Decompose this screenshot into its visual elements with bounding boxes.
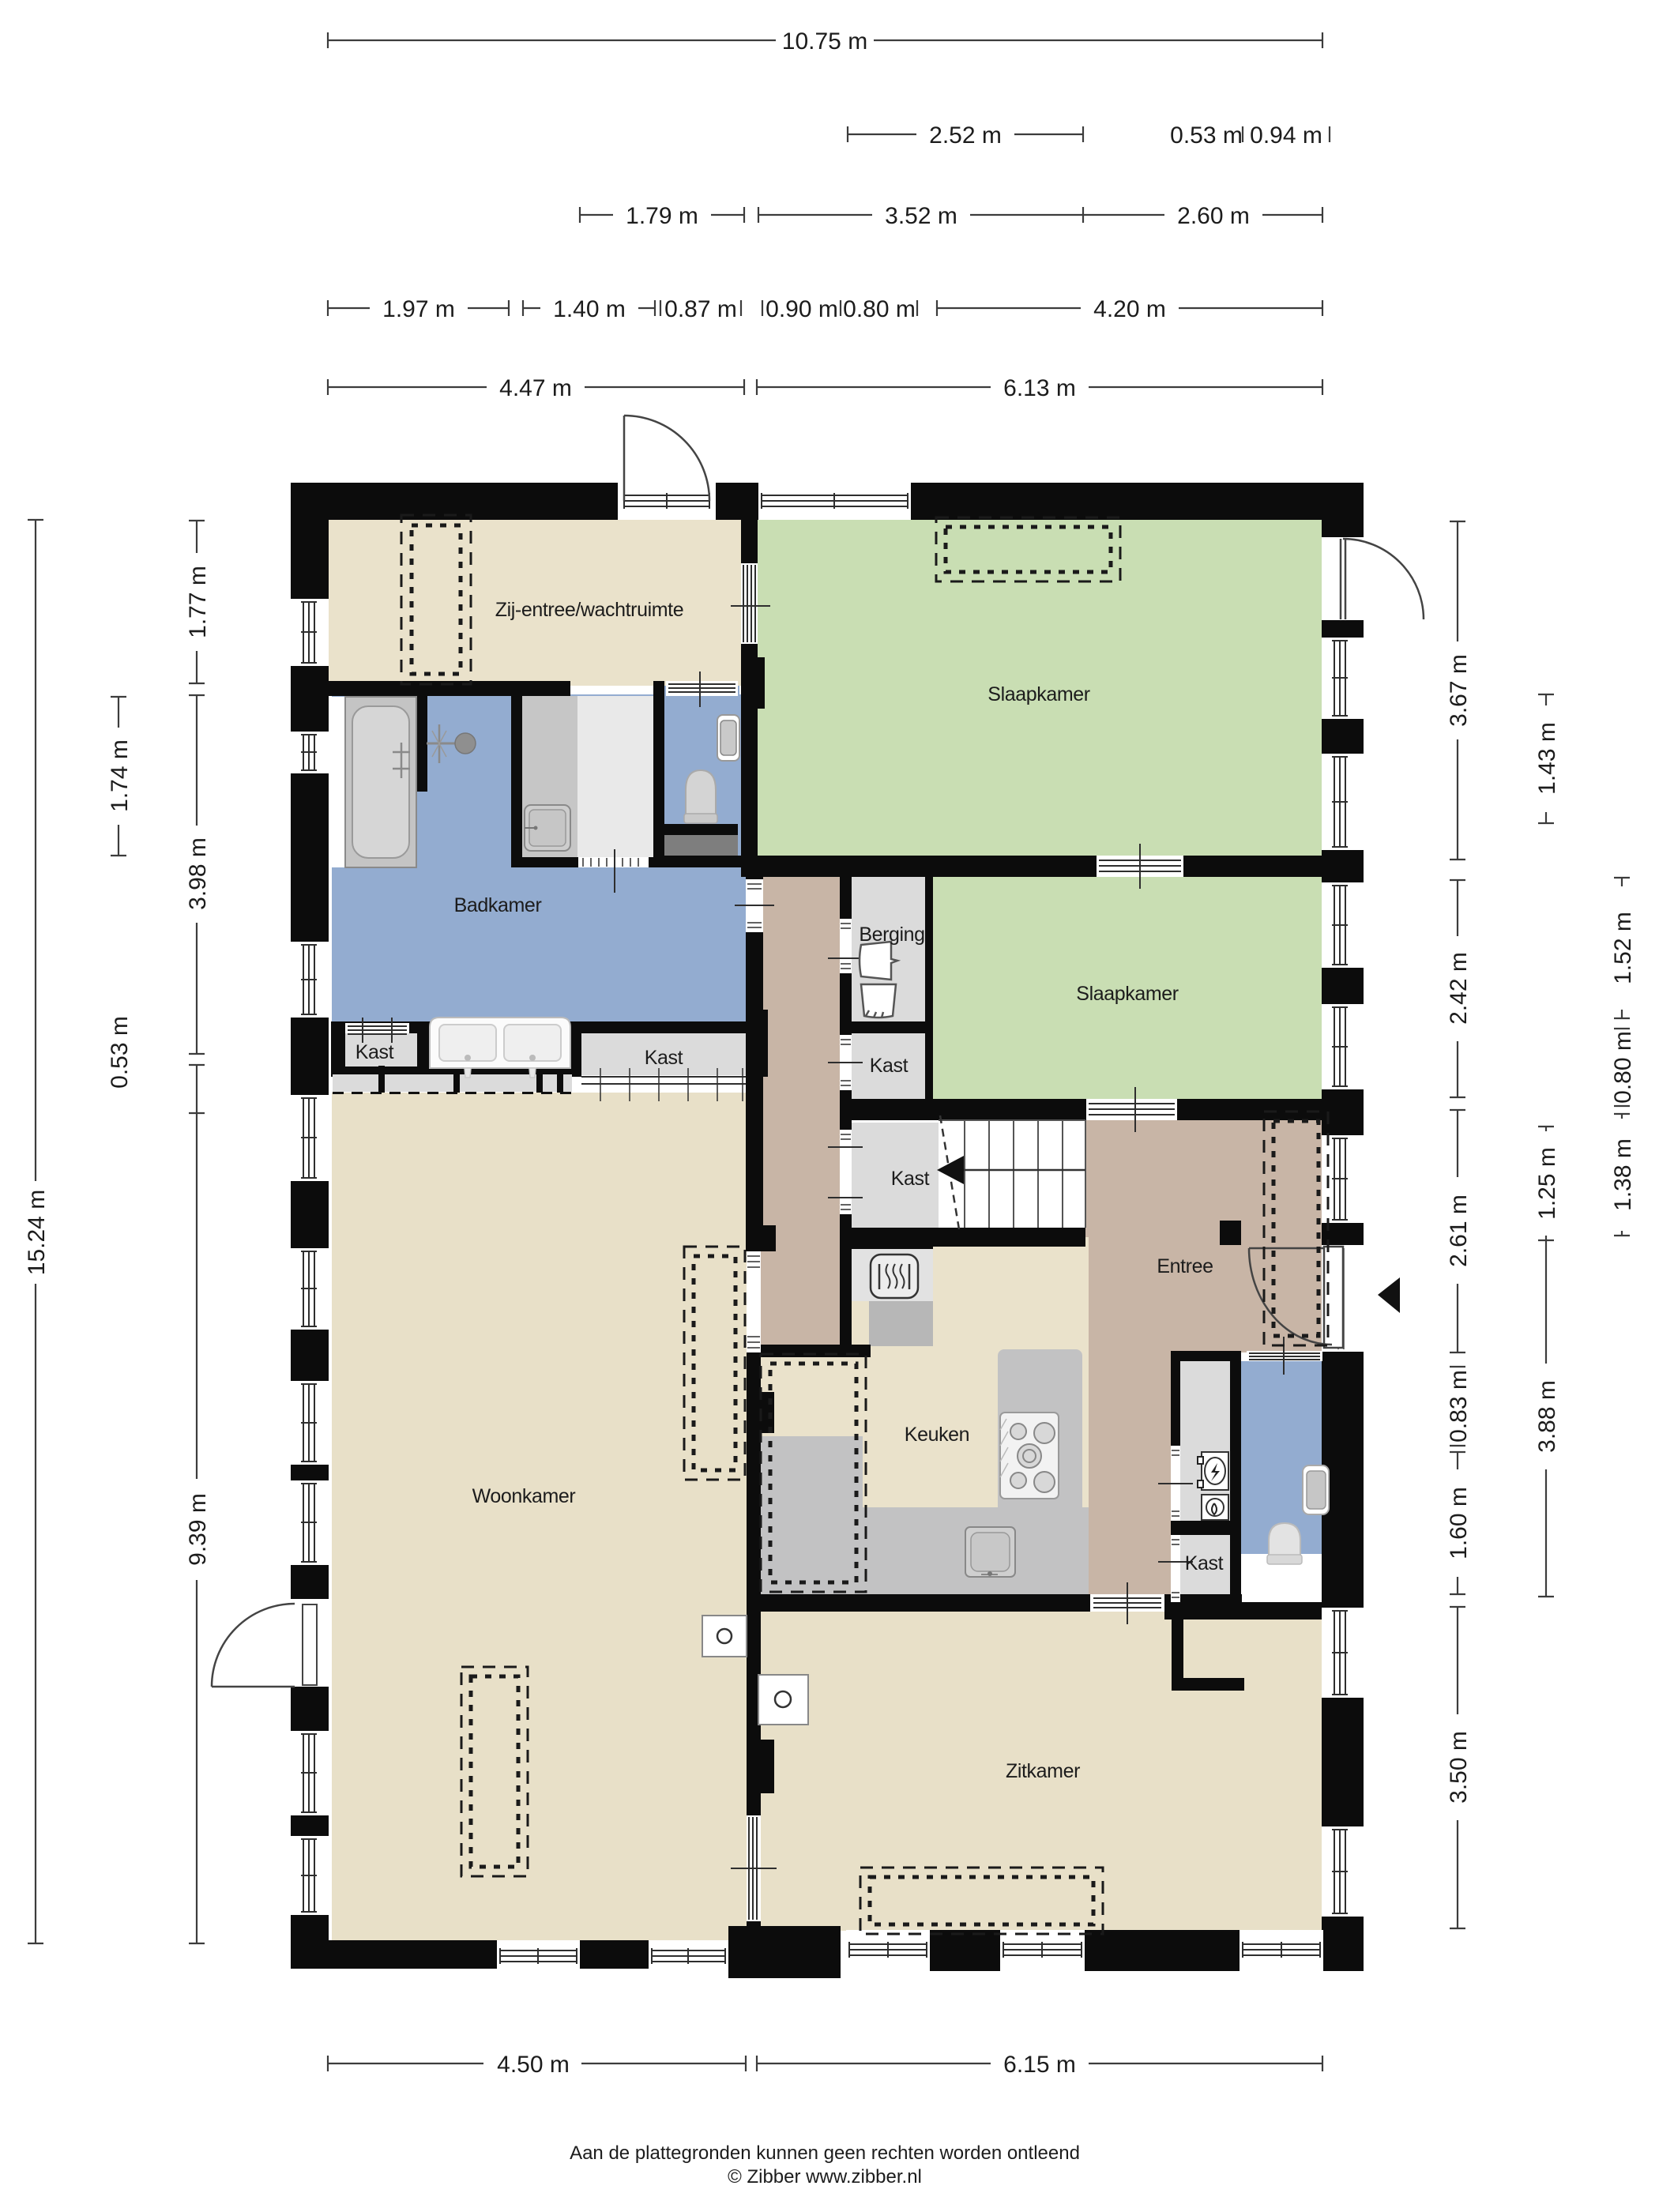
- svg-text:Kast: Kast: [645, 1047, 683, 1069]
- svg-text:Slaapkamer: Slaapkamer: [987, 683, 1089, 705]
- svg-text:Kast: Kast: [355, 1041, 394, 1063]
- svg-text:Slaapkamer: Slaapkamer: [1076, 983, 1178, 1005]
- svg-text:4.20 m: 4.20 m: [1093, 296, 1166, 322]
- svg-text:6.15 m: 6.15 m: [1003, 2052, 1076, 2078]
- svg-text:0.83 m: 0.83 m: [1446, 1370, 1472, 1443]
- svg-text:0.90 m: 0.90 m: [766, 296, 838, 322]
- svg-text:Badkamer: Badkamer: [454, 894, 542, 916]
- svg-text:0.87 m: 0.87 m: [664, 296, 737, 322]
- svg-text:3.98 m: 3.98 m: [185, 837, 211, 910]
- svg-text:Entree: Entree: [1157, 1255, 1213, 1277]
- svg-text:1.52 m: 1.52 m: [1610, 912, 1636, 984]
- svg-text:1.43 m: 1.43 m: [1534, 722, 1560, 795]
- svg-text:Keuken: Keuken: [905, 1424, 969, 1446]
- svg-text:3.50 m: 3.50 m: [1446, 1731, 1472, 1804]
- svg-text:Zij-entree/wachtruimte: Zij-entree/wachtruimte: [495, 599, 684, 621]
- svg-text:0.80 m: 0.80 m: [1610, 1031, 1636, 1104]
- svg-text:1.25 m: 1.25 m: [1534, 1147, 1560, 1220]
- svg-text:10.75 m: 10.75 m: [782, 28, 867, 55]
- svg-text:Kast: Kast: [870, 1055, 908, 1077]
- svg-text:0.53 m: 0.53 m: [1170, 122, 1243, 149]
- svg-text:Kast: Kast: [891, 1168, 930, 1190]
- svg-text:1.38 m: 1.38 m: [1610, 1138, 1636, 1211]
- svg-text:0.80 m: 0.80 m: [843, 296, 916, 322]
- svg-text:15.24 m: 15.24 m: [24, 1190, 50, 1275]
- svg-text:3.67 m: 3.67 m: [1446, 654, 1472, 727]
- svg-text:1.60 m: 1.60 m: [1446, 1487, 1472, 1559]
- svg-text:2.42 m: 2.42 m: [1446, 952, 1472, 1025]
- svg-text:Woonkamer: Woonkamer: [472, 1485, 576, 1507]
- svg-text:9.39 m: 9.39 m: [185, 1493, 211, 1566]
- svg-text:Zitkamer: Zitkamer: [1006, 1760, 1080, 1782]
- svg-text:Berging: Berging: [859, 924, 924, 946]
- svg-text:3.88 m: 3.88 m: [1534, 1380, 1560, 1453]
- svg-text:Kast: Kast: [1185, 1552, 1224, 1574]
- svg-text:1.97 m: 1.97 m: [382, 296, 455, 322]
- svg-text:1.40 m: 1.40 m: [553, 296, 626, 322]
- svg-text:3.52 m: 3.52 m: [885, 203, 957, 229]
- svg-text:2.52 m: 2.52 m: [929, 122, 1002, 149]
- svg-text:1.77 m: 1.77 m: [185, 566, 211, 638]
- svg-text:1.74 m: 1.74 m: [107, 739, 133, 812]
- svg-text:1.79 m: 1.79 m: [626, 203, 698, 229]
- svg-text:0.53 m: 0.53 m: [107, 1016, 133, 1089]
- svg-text:4.50 m: 4.50 m: [497, 2052, 570, 2078]
- svg-text:2.61 m: 2.61 m: [1446, 1194, 1472, 1267]
- svg-text:2.60 m: 2.60 m: [1177, 203, 1250, 229]
- svg-text:0.94 m: 0.94 m: [1250, 122, 1322, 149]
- svg-text:Aan de plattegronden kunnen ge: Aan de plattegronden kunnen geen rechten…: [570, 2142, 1080, 2164]
- svg-text:6.13 m: 6.13 m: [1003, 375, 1076, 401]
- svg-text:4.47 m: 4.47 m: [499, 375, 572, 401]
- svg-text:© Zibber www.zibber.nl: © Zibber www.zibber.nl: [728, 2166, 922, 2188]
